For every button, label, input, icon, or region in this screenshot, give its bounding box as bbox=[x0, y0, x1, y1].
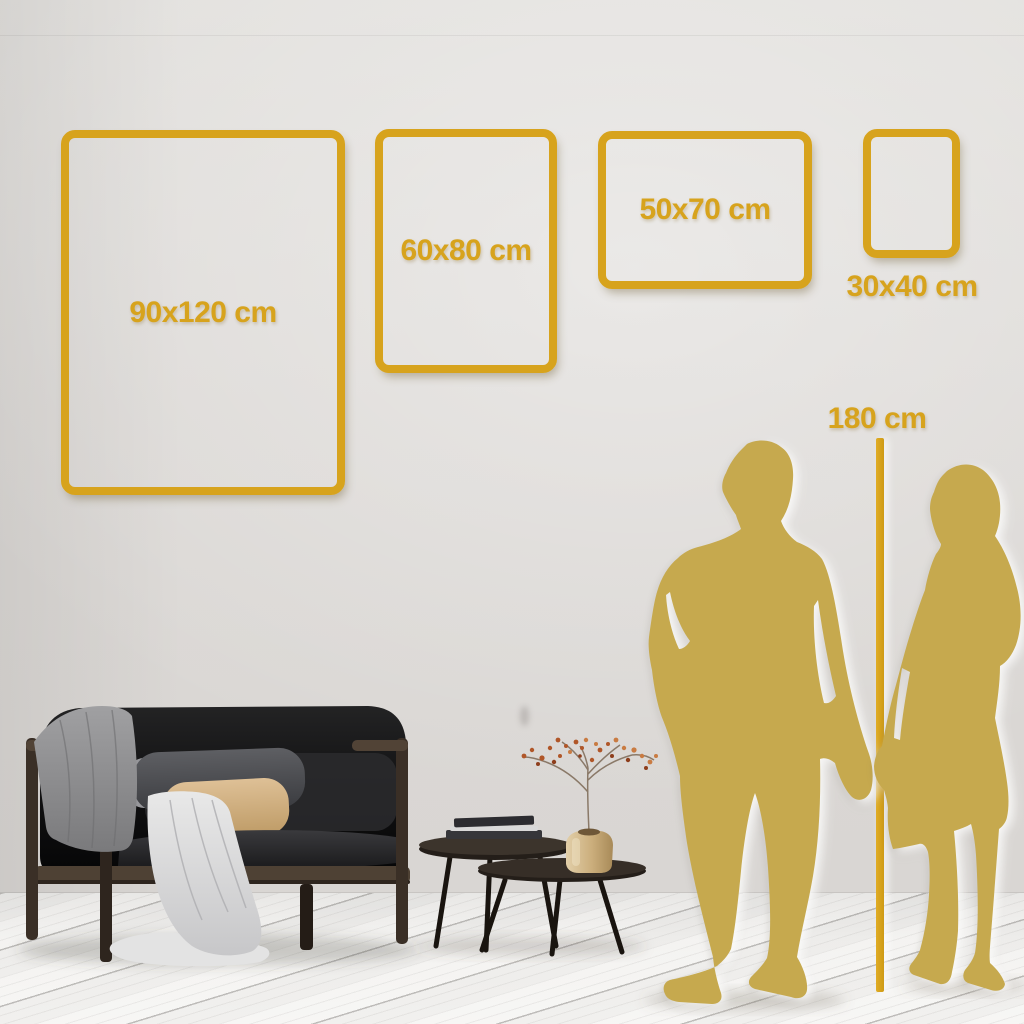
couple-silhouette bbox=[0, 0, 1024, 1024]
size-guide-scene: 90x120 cm 60x80 cm 50x70 cm 30x40 cm 180… bbox=[0, 0, 1024, 1024]
man-silhouette bbox=[649, 441, 873, 1004]
woman-silhouette bbox=[874, 464, 1021, 990]
